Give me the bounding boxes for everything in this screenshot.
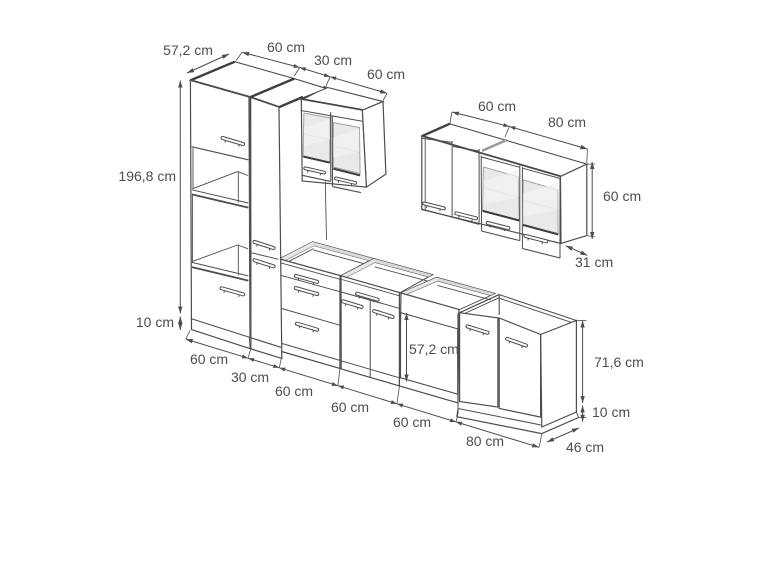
svg-text:60 cm: 60 cm (190, 351, 228, 367)
svg-text:60 cm: 60 cm (393, 414, 431, 430)
svg-text:10 cm: 10 cm (136, 314, 174, 330)
svg-text:60 cm: 60 cm (331, 399, 369, 415)
svg-text:60 cm: 60 cm (275, 383, 313, 399)
svg-text:80 cm: 80 cm (466, 433, 504, 449)
svg-text:80 cm: 80 cm (548, 114, 586, 130)
svg-text:57,2 cm: 57,2 cm (409, 341, 459, 357)
svg-text:60 cm: 60 cm (367, 66, 405, 82)
svg-text:57,2 cm: 57,2 cm (163, 42, 213, 58)
svg-text:60 cm: 60 cm (267, 39, 305, 55)
svg-text:60 cm: 60 cm (478, 98, 516, 114)
svg-text:30 cm: 30 cm (231, 369, 269, 385)
svg-text:71,6 cm: 71,6 cm (594, 354, 644, 370)
svg-text:46 cm: 46 cm (566, 439, 604, 455)
svg-text:31 cm: 31 cm (575, 254, 613, 270)
svg-text:10 cm: 10 cm (592, 404, 630, 420)
svg-text:30 cm: 30 cm (314, 52, 352, 68)
svg-text:196,8 cm: 196,8 cm (118, 168, 176, 184)
svg-text:60 cm: 60 cm (603, 188, 641, 204)
